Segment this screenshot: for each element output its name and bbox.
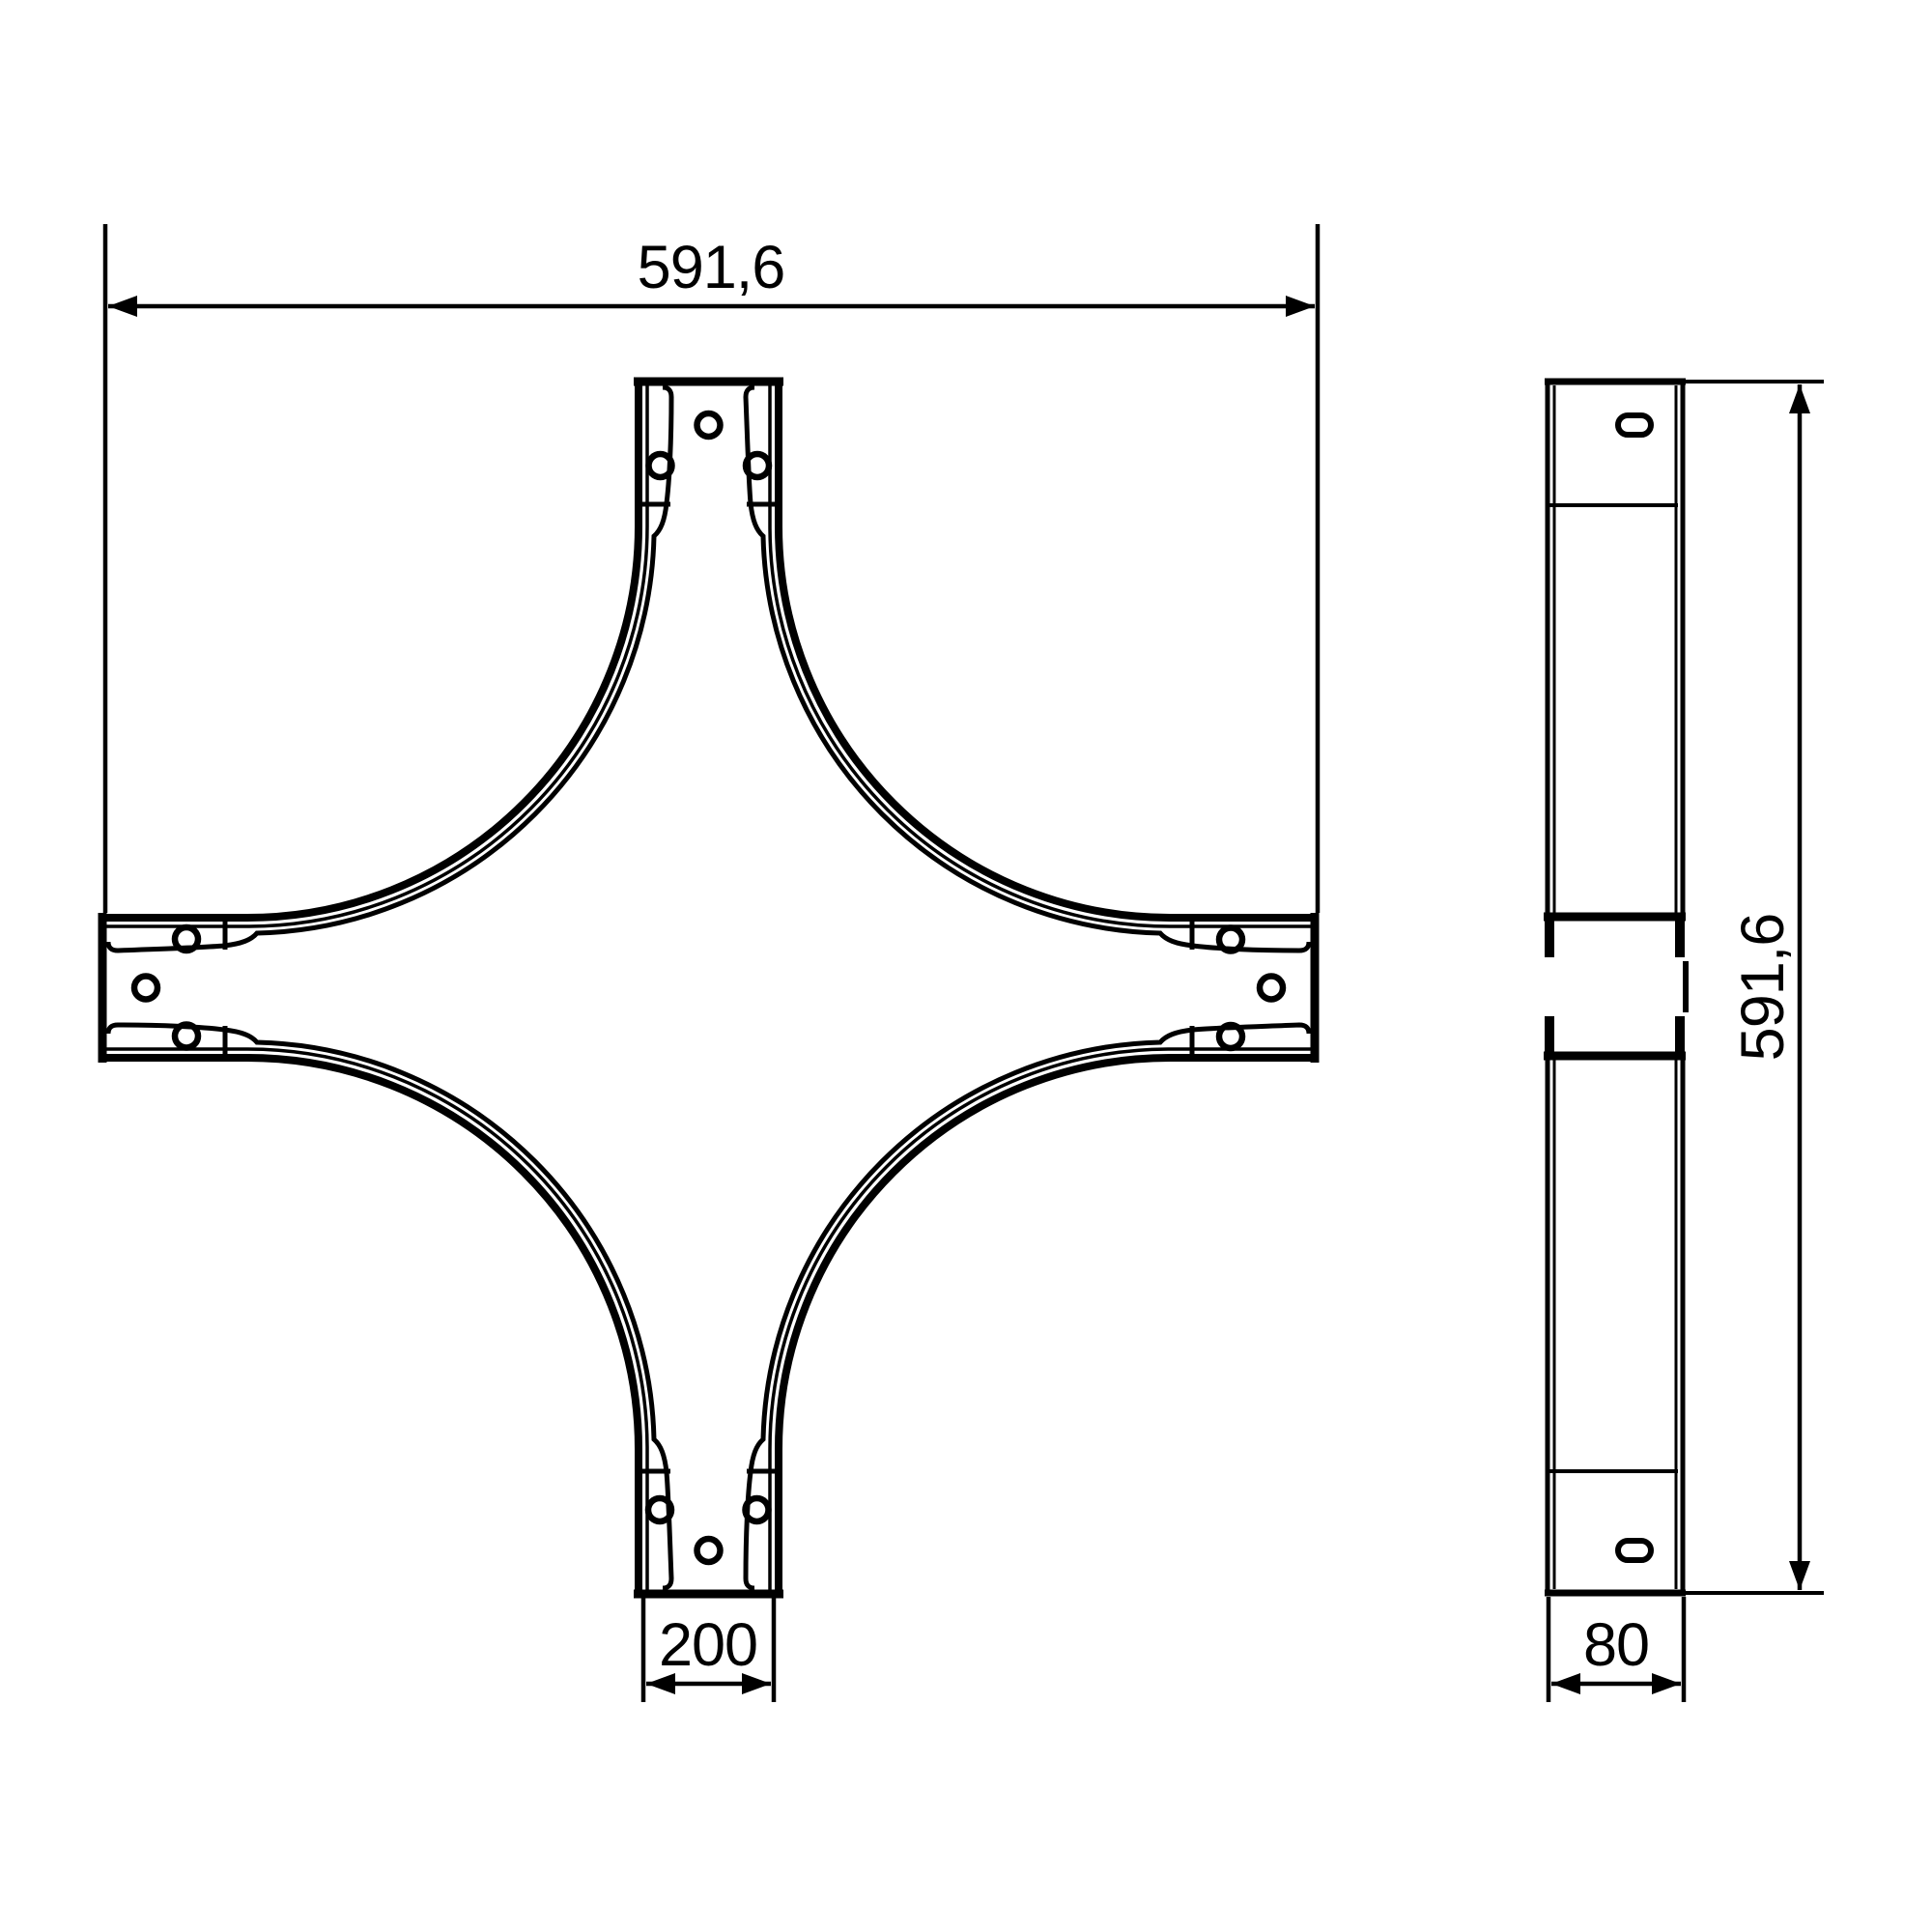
- side-slot-hole-top: [1618, 415, 1651, 435]
- drawing-svg: 591,6 200 591,6 80: [0, 0, 1932, 1932]
- arm-top: [634, 382, 1317, 951]
- dimension-connector-width: 200: [643, 1597, 774, 1702]
- arrowhead-up-icon: [1789, 384, 1810, 413]
- dimension-side-height: 591,6: [1686, 382, 1824, 1593]
- side-view: [1544, 382, 1686, 1593]
- arrowhead-left-icon: [1551, 1673, 1580, 1694]
- side-depth-dim-label: 80: [1583, 1611, 1649, 1679]
- arm-bottom: [100, 1025, 783, 1594]
- side-slot-hole-bottom: [1618, 1541, 1651, 1560]
- arrowhead-down-icon: [1789, 1561, 1810, 1590]
- technical-drawing-page: 591,6 200 591,6 80: [0, 0, 1932, 1932]
- arrowhead-right-icon: [1286, 296, 1315, 317]
- side-height-dim-label: 591,6: [1729, 914, 1797, 1062]
- arm-right: [746, 913, 1315, 1596]
- connector-width-dim-label: 200: [659, 1611, 757, 1679]
- arrowhead-right-icon: [1652, 1673, 1681, 1694]
- front-view-cross: [100, 380, 1317, 1596]
- dimension-front-width: 591,6: [105, 224, 1318, 913]
- front-width-dim-label: 591,6: [638, 234, 785, 301]
- arm-left: [102, 380, 671, 1063]
- dimension-side-depth: 80: [1548, 1597, 1684, 1702]
- arrowhead-left-icon: [108, 296, 137, 317]
- side-middle-break: [1544, 917, 1686, 1056]
